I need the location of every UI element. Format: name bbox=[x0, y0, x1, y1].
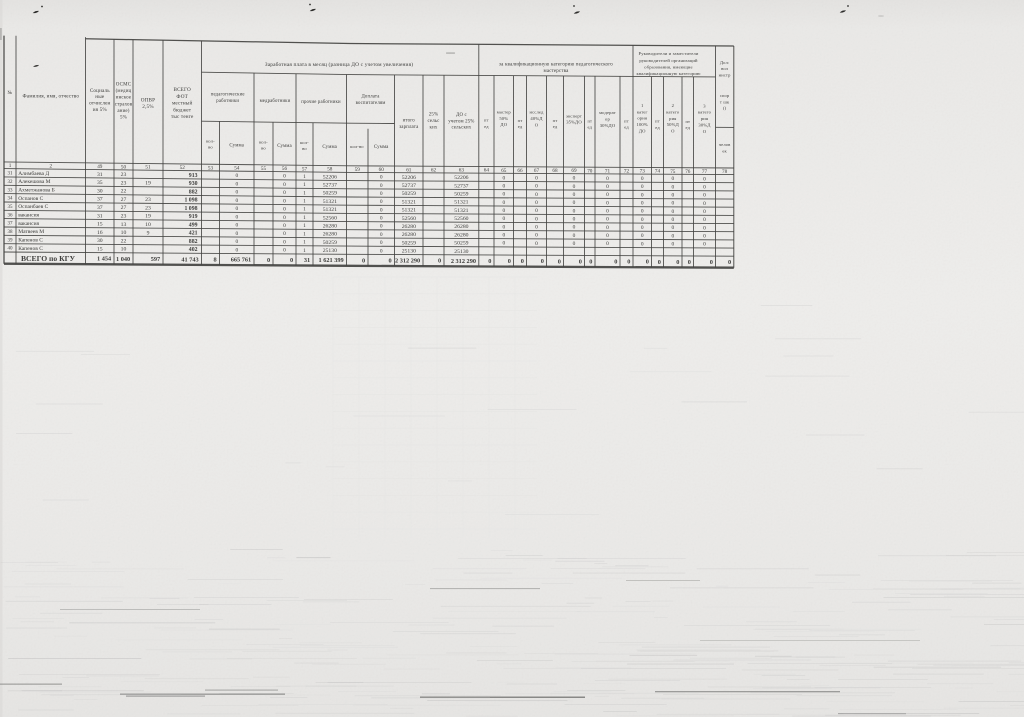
svg-text:32: 32 bbox=[8, 180, 14, 185]
svg-text:35%ДО: 35%ДО bbox=[566, 120, 582, 125]
svg-text:31: 31 bbox=[304, 257, 310, 264]
svg-text:1: 1 bbox=[303, 248, 306, 254]
svg-text:2 312 290: 2 312 290 bbox=[451, 258, 476, 265]
svg-text:0: 0 bbox=[380, 240, 383, 246]
svg-text:51: 51 bbox=[145, 165, 151, 171]
svg-text:37: 37 bbox=[97, 205, 103, 211]
svg-text:36: 36 bbox=[8, 213, 14, 218]
svg-text:вол: вол bbox=[721, 66, 729, 71]
svg-text:1: 1 bbox=[303, 190, 306, 196]
svg-text:66: 66 bbox=[517, 168, 523, 174]
svg-text:51321: 51321 bbox=[323, 199, 337, 205]
svg-text:Сумма: Сумма bbox=[374, 145, 389, 150]
svg-text:пт: пт bbox=[685, 119, 690, 124]
svg-text:Оспанбаев С: Оспанбаев С bbox=[18, 203, 48, 210]
svg-text:пт: пт bbox=[587, 118, 592, 123]
svg-text:0: 0 bbox=[380, 191, 383, 197]
svg-text:0: 0 bbox=[235, 247, 238, 253]
svg-text:0: 0 bbox=[641, 209, 644, 215]
svg-text:50259: 50259 bbox=[454, 241, 468, 247]
svg-text:1 098: 1 098 bbox=[184, 206, 197, 212]
svg-text:Алекешова М: Алекешова М bbox=[18, 179, 50, 185]
svg-text:Ахметжанова Б: Ахметжанова Б bbox=[18, 188, 55, 194]
svg-text:0: 0 bbox=[606, 217, 609, 223]
svg-text:0: 0 bbox=[671, 209, 674, 215]
svg-text:38: 38 bbox=[8, 230, 14, 235]
svg-text:0: 0 bbox=[283, 248, 286, 254]
svg-text:ия 5%: ия 5% bbox=[93, 107, 108, 113]
svg-text:50%: 50% bbox=[499, 116, 508, 121]
svg-text:0: 0 bbox=[535, 208, 538, 214]
svg-text:52: 52 bbox=[180, 165, 186, 171]
svg-text:0: 0 bbox=[380, 207, 383, 213]
svg-text:(медиц: (медиц bbox=[116, 89, 132, 94]
svg-text:катего: катего bbox=[698, 110, 712, 115]
svg-text:19: 19 bbox=[145, 181, 151, 187]
svg-text:50259: 50259 bbox=[323, 240, 337, 246]
svg-text:ед: ед bbox=[484, 124, 489, 129]
svg-text:Доплата: Доплата bbox=[362, 95, 381, 100]
svg-text:квалификационную категорию: квалификационную категорию bbox=[636, 71, 701, 76]
svg-text:пт: пт bbox=[553, 118, 558, 123]
svg-text:0: 0 bbox=[641, 217, 644, 223]
svg-text:52737: 52737 bbox=[454, 183, 468, 189]
svg-text:О: О bbox=[671, 129, 675, 134]
svg-text:50: 50 bbox=[121, 164, 127, 170]
svg-text:2 312 290: 2 312 290 bbox=[395, 258, 420, 265]
svg-text:0: 0 bbox=[579, 258, 582, 265]
svg-text:ДО: ДО bbox=[639, 128, 646, 133]
svg-text:0: 0 bbox=[703, 185, 706, 191]
svg-text:71: 71 bbox=[605, 168, 611, 174]
svg-text:65: 65 bbox=[501, 168, 507, 174]
svg-text:61: 61 bbox=[406, 167, 412, 173]
svg-text:31: 31 bbox=[8, 172, 14, 177]
svg-text:0: 0 bbox=[535, 192, 538, 198]
svg-text:39: 39 bbox=[8, 238, 14, 243]
svg-text:0: 0 bbox=[502, 175, 505, 181]
svg-text:№: № bbox=[8, 90, 13, 96]
svg-text:воспитателям: воспитателям bbox=[356, 101, 386, 106]
svg-text:25%: 25% bbox=[429, 113, 438, 118]
svg-text:О: О bbox=[535, 122, 539, 127]
svg-text:0: 0 bbox=[573, 184, 576, 190]
svg-text:сельских: сельских bbox=[451, 126, 471, 131]
svg-text:0: 0 bbox=[641, 201, 644, 207]
svg-text:вакансия: вакансия bbox=[18, 213, 39, 219]
svg-text:1: 1 bbox=[303, 223, 306, 229]
svg-text:22: 22 bbox=[121, 189, 127, 195]
svg-text:919: 919 bbox=[189, 214, 198, 220]
svg-text:1 040: 1 040 bbox=[116, 256, 130, 263]
svg-text:26280: 26280 bbox=[402, 224, 416, 230]
svg-text:ные: ные bbox=[95, 94, 105, 100]
svg-text:70: 70 bbox=[587, 168, 593, 174]
svg-text:0: 0 bbox=[606, 176, 609, 182]
svg-text:1 454: 1 454 bbox=[97, 256, 112, 263]
svg-text:0: 0 bbox=[614, 259, 617, 266]
svg-text:итого: итого bbox=[403, 118, 416, 123]
svg-text:ДО с: ДО с bbox=[456, 113, 468, 118]
svg-text:52206: 52206 bbox=[402, 175, 416, 181]
svg-text:Матвеев М: Матвеев М bbox=[18, 229, 44, 235]
svg-text:0: 0 bbox=[380, 175, 383, 181]
svg-text:0: 0 bbox=[573, 176, 576, 182]
svg-text:рия: рия bbox=[669, 116, 677, 121]
svg-text:55: 55 bbox=[261, 166, 267, 172]
svg-text:0: 0 bbox=[502, 241, 505, 247]
svg-text:зарплата: зарплата bbox=[399, 125, 419, 130]
svg-text:инское: инское bbox=[116, 96, 132, 101]
svg-text:0: 0 bbox=[235, 231, 238, 237]
svg-text:74: 74 bbox=[655, 169, 661, 175]
svg-text:0: 0 bbox=[671, 184, 674, 190]
svg-text:0: 0 bbox=[235, 198, 238, 204]
svg-text:665 761: 665 761 bbox=[231, 257, 251, 264]
svg-text:22: 22 bbox=[121, 238, 127, 244]
svg-text:кол-: кол- bbox=[206, 139, 215, 144]
svg-text:51321: 51321 bbox=[454, 208, 468, 214]
svg-text:ание): ание) bbox=[117, 109, 129, 114]
svg-text:10: 10 bbox=[121, 230, 127, 236]
svg-text:0: 0 bbox=[627, 259, 630, 266]
svg-text:кол-: кол- bbox=[300, 140, 309, 145]
svg-text:ек: ек bbox=[722, 148, 727, 153]
svg-text:402: 402 bbox=[189, 247, 198, 253]
svg-text:кол-во: кол-во bbox=[350, 144, 364, 149]
svg-text:0: 0 bbox=[502, 224, 505, 230]
svg-text:пт: пт bbox=[518, 118, 523, 123]
svg-text:52206: 52206 bbox=[323, 174, 337, 180]
svg-text:23: 23 bbox=[121, 172, 127, 178]
svg-text:катег: катег bbox=[637, 109, 648, 114]
svg-text:19: 19 bbox=[145, 214, 151, 220]
svg-text:0: 0 bbox=[646, 259, 649, 266]
svg-text:27: 27 bbox=[121, 205, 127, 211]
svg-text:0: 0 bbox=[606, 192, 609, 198]
svg-text:0: 0 bbox=[703, 201, 706, 207]
svg-text:23: 23 bbox=[145, 205, 151, 211]
svg-text:0: 0 bbox=[283, 215, 286, 221]
svg-text:50259: 50259 bbox=[402, 240, 416, 246]
svg-text:во: во bbox=[208, 145, 213, 150]
svg-text:34: 34 bbox=[8, 197, 14, 202]
svg-text:0: 0 bbox=[535, 233, 538, 239]
svg-text:882: 882 bbox=[189, 239, 198, 245]
svg-text:421: 421 bbox=[189, 231, 198, 237]
svg-text:прочие работники: прочие работники bbox=[301, 100, 341, 105]
svg-text:ед: ед bbox=[553, 124, 558, 129]
svg-text:0: 0 bbox=[606, 209, 609, 215]
svg-text:катего: катего bbox=[666, 110, 680, 115]
svg-text:0: 0 bbox=[380, 183, 383, 189]
svg-text:учетом 25%: учетом 25% bbox=[448, 119, 474, 124]
svg-text:37: 37 bbox=[8, 222, 14, 227]
svg-text:0: 0 bbox=[573, 233, 576, 239]
svg-text:ория: ория bbox=[637, 116, 648, 121]
svg-text:0: 0 bbox=[606, 225, 609, 231]
svg-text:0: 0 bbox=[235, 173, 238, 179]
svg-text:52737: 52737 bbox=[402, 183, 416, 189]
svg-text:0: 0 bbox=[380, 224, 383, 230]
svg-text:местный: местный bbox=[172, 100, 192, 107]
svg-text:1: 1 bbox=[303, 215, 306, 221]
svg-text:0: 0 bbox=[508, 258, 511, 265]
svg-text:рия: рия bbox=[701, 116, 709, 121]
svg-text:51321: 51321 bbox=[323, 207, 337, 213]
svg-text:во: во bbox=[261, 145, 266, 150]
svg-text:0: 0 bbox=[502, 200, 505, 206]
svg-text:0: 0 bbox=[235, 239, 238, 245]
svg-text:8: 8 bbox=[214, 256, 217, 263]
svg-text:0: 0 bbox=[641, 225, 644, 231]
svg-text:0: 0 bbox=[267, 257, 270, 264]
svg-text:0: 0 bbox=[671, 201, 674, 207]
svg-text:52206: 52206 bbox=[454, 175, 468, 181]
svg-text:ДО: ДО bbox=[500, 122, 507, 127]
svg-text:0: 0 bbox=[641, 241, 644, 247]
svg-text:26280: 26280 bbox=[323, 232, 337, 238]
svg-text:0: 0 bbox=[671, 176, 674, 182]
svg-text:30%Д: 30%Д bbox=[698, 122, 711, 127]
svg-text:10: 10 bbox=[145, 222, 151, 228]
svg-text:ед: ед bbox=[518, 124, 523, 129]
svg-text:тыс тенге: тыс тенге bbox=[171, 114, 194, 120]
svg-text:0: 0 bbox=[535, 175, 538, 181]
svg-text:0: 0 bbox=[535, 216, 538, 222]
svg-text:1: 1 bbox=[303, 207, 306, 213]
svg-text:0: 0 bbox=[671, 217, 674, 223]
svg-text:0: 0 bbox=[502, 216, 505, 222]
svg-text:Алимбаева Д: Алимбаева Д bbox=[18, 170, 49, 177]
svg-text:9: 9 bbox=[147, 230, 150, 236]
svg-text:35: 35 bbox=[8, 205, 14, 210]
svg-text:ВСЕГО по КГУ: ВСЕГО по КГУ bbox=[21, 254, 75, 263]
svg-text:Сумма: Сумма bbox=[229, 144, 244, 149]
svg-text:0: 0 bbox=[573, 208, 576, 214]
svg-text:0: 0 bbox=[606, 241, 609, 247]
svg-text:75: 75 bbox=[670, 169, 676, 175]
svg-text:25130: 25130 bbox=[402, 249, 416, 255]
svg-text:30: 30 bbox=[97, 188, 103, 194]
svg-text:37: 37 bbox=[97, 197, 103, 203]
svg-text:78: 78 bbox=[722, 169, 728, 175]
svg-text:27: 27 bbox=[121, 197, 127, 203]
svg-text:0: 0 bbox=[535, 241, 538, 247]
svg-text:0: 0 bbox=[502, 233, 505, 239]
svg-text:0: 0 bbox=[703, 209, 706, 215]
svg-text:51321: 51321 bbox=[454, 200, 468, 206]
svg-text:Капенов С: Капенов С bbox=[18, 246, 43, 252]
svg-text:ед: ед bbox=[655, 125, 660, 130]
svg-text:бюджет: бюджет bbox=[173, 106, 191, 113]
svg-text:пт: пт bbox=[655, 119, 660, 124]
svg-text:35: 35 bbox=[97, 180, 103, 186]
svg-text:О: О bbox=[703, 129, 707, 134]
svg-text:0: 0 bbox=[380, 199, 383, 205]
svg-text:31: 31 bbox=[97, 172, 103, 178]
svg-text:0: 0 bbox=[703, 176, 706, 182]
svg-text:отчислен: отчислен bbox=[89, 101, 110, 107]
svg-text:0: 0 bbox=[573, 217, 576, 223]
svg-text:0: 0 bbox=[606, 184, 609, 190]
svg-text:2: 2 bbox=[50, 164, 53, 170]
svg-text:62: 62 bbox=[431, 167, 437, 173]
svg-text:50259: 50259 bbox=[402, 191, 416, 197]
svg-text:0: 0 bbox=[283, 207, 286, 213]
svg-text:1: 1 bbox=[303, 240, 306, 246]
svg-text:Заработная плата в месяц (разн: Заработная плата в месяц (разница ДО с у… bbox=[265, 61, 413, 68]
svg-text:ВСЕГО: ВСЕГО bbox=[173, 87, 191, 93]
svg-text:Руководители и заместители: Руководители и заместители bbox=[639, 51, 699, 56]
svg-text:1 621 399: 1 621 399 bbox=[319, 257, 344, 264]
svg-text:мастер: мастер bbox=[497, 110, 512, 115]
svg-text:0: 0 bbox=[606, 233, 609, 239]
svg-text:0: 0 bbox=[235, 181, 238, 187]
svg-text:67: 67 bbox=[534, 168, 540, 174]
svg-text:0: 0 bbox=[380, 232, 383, 238]
svg-text:0: 0 bbox=[488, 258, 491, 265]
svg-text:0: 0 bbox=[558, 258, 561, 265]
svg-text:сельс: сельс bbox=[428, 119, 441, 124]
svg-text:51321: 51321 bbox=[402, 208, 416, 214]
svg-text:0: 0 bbox=[658, 259, 661, 266]
svg-text:1: 1 bbox=[303, 199, 306, 205]
svg-text:0: 0 bbox=[573, 241, 576, 247]
svg-text:во: во bbox=[302, 146, 307, 151]
svg-text:0: 0 bbox=[521, 258, 524, 265]
svg-text:Капенов С: Капенов С bbox=[18, 238, 43, 244]
svg-text:0: 0 bbox=[290, 257, 293, 264]
svg-text:0: 0 bbox=[703, 217, 706, 223]
svg-text:64: 64 bbox=[484, 168, 490, 174]
svg-text:913: 913 bbox=[189, 173, 198, 179]
svg-text:Сумма: Сумма bbox=[277, 144, 292, 149]
svg-text:0: 0 bbox=[502, 183, 505, 189]
svg-text:68: 68 bbox=[552, 168, 558, 174]
svg-text:77: 77 bbox=[702, 169, 708, 175]
svg-text:26280: 26280 bbox=[454, 224, 468, 230]
svg-text:49: 49 bbox=[97, 164, 103, 170]
svg-text:53: 53 bbox=[208, 165, 214, 171]
svg-text:0: 0 bbox=[362, 257, 365, 264]
svg-text:0: 0 bbox=[671, 242, 674, 248]
svg-text:0: 0 bbox=[573, 192, 576, 198]
svg-text:0: 0 bbox=[283, 239, 286, 245]
svg-text:0: 0 bbox=[573, 225, 576, 231]
svg-text:педагогические: педагогические bbox=[211, 93, 245, 98]
svg-text:0: 0 bbox=[703, 234, 706, 240]
svg-text:76: 76 bbox=[685, 169, 691, 175]
svg-text:0: 0 bbox=[728, 259, 731, 266]
svg-text:51321: 51321 bbox=[402, 199, 416, 205]
svg-text:кол-: кол- bbox=[259, 139, 268, 144]
svg-text:страхов: страхов bbox=[115, 102, 133, 107]
svg-text:за квалификационную категорию: за квалификационную категорию педагогиче… bbox=[499, 62, 613, 67]
svg-text:23: 23 bbox=[145, 197, 151, 203]
svg-text:15: 15 bbox=[97, 222, 103, 228]
svg-text:мастерства: мастерства bbox=[544, 69, 570, 74]
svg-text:16: 16 bbox=[97, 230, 103, 236]
svg-text:0: 0 bbox=[676, 259, 679, 266]
svg-text:0: 0 bbox=[380, 216, 383, 222]
svg-text:26280: 26280 bbox=[402, 232, 416, 238]
svg-text:73: 73 bbox=[640, 169, 646, 175]
svg-text:инстр: инстр bbox=[719, 72, 731, 77]
svg-text:ФОТ: ФОТ bbox=[176, 94, 188, 100]
svg-text:0: 0 bbox=[589, 259, 592, 266]
svg-text:52560: 52560 bbox=[323, 215, 337, 221]
svg-text:63: 63 bbox=[459, 168, 465, 174]
svg-text:0: 0 bbox=[710, 259, 713, 266]
svg-text:0: 0 bbox=[502, 208, 505, 214]
svg-text:ед: ед bbox=[624, 125, 629, 130]
svg-text:0: 0 bbox=[641, 184, 644, 190]
svg-text:50%Д: 50%Д bbox=[667, 122, 680, 127]
svg-text:0: 0 bbox=[235, 206, 238, 212]
svg-text:0: 0 bbox=[671, 233, 674, 239]
svg-text:0: 0 bbox=[541, 258, 544, 265]
svg-text:69: 69 bbox=[571, 168, 577, 174]
svg-text:ор: ор bbox=[605, 117, 610, 122]
svg-text:882: 882 bbox=[189, 189, 198, 195]
svg-text:52737: 52737 bbox=[323, 183, 337, 189]
svg-text:0: 0 bbox=[235, 214, 238, 220]
svg-text:26280: 26280 bbox=[323, 224, 337, 230]
svg-text:исслед: исслед bbox=[529, 110, 544, 115]
svg-text:0: 0 bbox=[389, 258, 392, 265]
svg-text:33: 33 bbox=[8, 188, 14, 193]
svg-text:Оспанов С: Оспанов С bbox=[18, 196, 43, 202]
svg-text:0: 0 bbox=[502, 192, 505, 198]
svg-text:930: 930 bbox=[189, 181, 198, 187]
svg-text:0: 0 bbox=[703, 225, 706, 231]
svg-text:0: 0 bbox=[641, 176, 644, 182]
svg-text:медработники: медработники bbox=[260, 99, 291, 104]
svg-text:0: 0 bbox=[535, 200, 538, 206]
svg-text:пт: пт bbox=[624, 119, 629, 124]
svg-text:0: 0 bbox=[671, 225, 674, 231]
svg-text:52560: 52560 bbox=[454, 216, 468, 222]
svg-text:Сумма: Сумма bbox=[322, 145, 337, 150]
svg-text:597: 597 bbox=[151, 256, 160, 263]
svg-text:пт: пт bbox=[484, 118, 489, 123]
svg-text:1 098: 1 098 bbox=[184, 198, 197, 204]
svg-text:5%: 5% bbox=[120, 115, 127, 120]
svg-text:59: 59 bbox=[355, 167, 361, 173]
svg-text:1: 1 bbox=[303, 231, 306, 237]
svg-text:0: 0 bbox=[641, 192, 644, 198]
svg-text:54: 54 bbox=[234, 166, 240, 172]
svg-text:1: 1 bbox=[9, 163, 12, 169]
svg-text:60: 60 bbox=[379, 167, 385, 173]
svg-text:0: 0 bbox=[535, 225, 538, 231]
svg-text:30: 30 bbox=[97, 238, 103, 244]
svg-text:1: 1 bbox=[303, 182, 306, 188]
svg-text:0: 0 bbox=[283, 223, 286, 229]
svg-text:0: 0 bbox=[283, 174, 286, 180]
svg-text:50259: 50259 bbox=[323, 191, 337, 197]
svg-text:0: 0 bbox=[703, 242, 706, 248]
svg-text:руководителей организаций: руководителей организаций bbox=[639, 58, 698, 63]
svg-text:Социаль: Социаль bbox=[90, 88, 110, 94]
svg-text:10: 10 bbox=[121, 247, 127, 253]
svg-text:30%ДО: 30%ДО bbox=[600, 123, 616, 128]
svg-text:26280: 26280 bbox=[454, 232, 468, 238]
svg-text:0: 0 bbox=[380, 248, 383, 254]
svg-text:0: 0 bbox=[641, 233, 644, 239]
svg-text:50259: 50259 bbox=[454, 192, 468, 198]
